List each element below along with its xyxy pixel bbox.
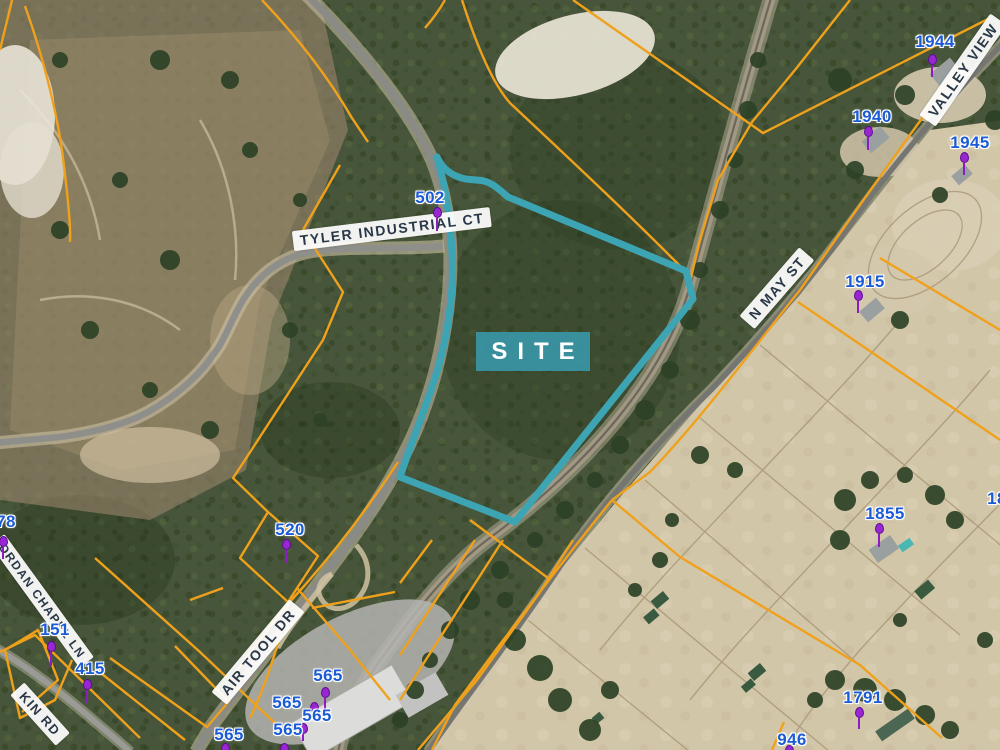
map-pin-icon[interactable] [928, 54, 936, 77]
map-pin-icon[interactable] [855, 707, 863, 729]
address-label: 502 [415, 188, 445, 208]
address-label: 1915 [845, 272, 884, 292]
address-label: 1944 [915, 32, 954, 52]
map-pin-icon[interactable] [864, 126, 872, 150]
address-label: 946 [777, 730, 807, 750]
address-label: 415 [75, 659, 105, 679]
map-pin-icon[interactable] [83, 679, 91, 703]
address-label: 1855 [865, 504, 904, 524]
site-label-box: SITE [476, 332, 590, 371]
address-label: 565 [302, 706, 332, 726]
address-label: 565 [313, 666, 343, 686]
aerial-map-canvas: SITE TYLER INDUSTRIAL CTAIR TOOL DRN MAY… [0, 0, 1000, 750]
site-label-text: SITE [491, 338, 584, 366]
address-label: 151 [40, 620, 70, 640]
address-label: 1940 [852, 107, 891, 127]
map-pin-icon[interactable] [433, 207, 441, 231]
map-pin-icon[interactable] [282, 539, 290, 563]
map-pin-icon[interactable] [47, 641, 55, 666]
address-label: 565 [214, 725, 244, 745]
address-label: 520 [275, 520, 305, 540]
aerial-imagery [0, 0, 1000, 750]
address-label: 565 [273, 720, 303, 740]
map-pin-icon[interactable] [280, 743, 288, 750]
map-pin-icon[interactable] [0, 536, 7, 559]
address-label: 78 [0, 512, 16, 532]
map-pin-icon[interactable] [854, 290, 862, 313]
address-label: 18 [987, 489, 1000, 509]
address-label: 1791 [843, 688, 882, 708]
map-pin-icon[interactable] [875, 523, 883, 547]
address-label: 1945 [950, 133, 989, 153]
map-pin-icon[interactable] [960, 152, 968, 175]
address-label: 565 [272, 693, 302, 713]
